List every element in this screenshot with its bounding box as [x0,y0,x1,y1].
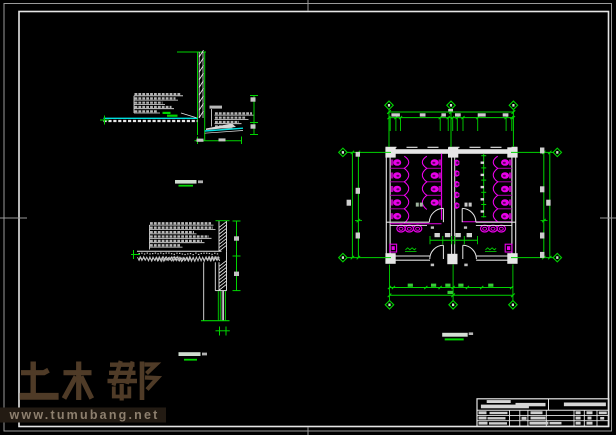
svg-text:www.tumubang.net: www.tumubang.net [9,408,160,422]
